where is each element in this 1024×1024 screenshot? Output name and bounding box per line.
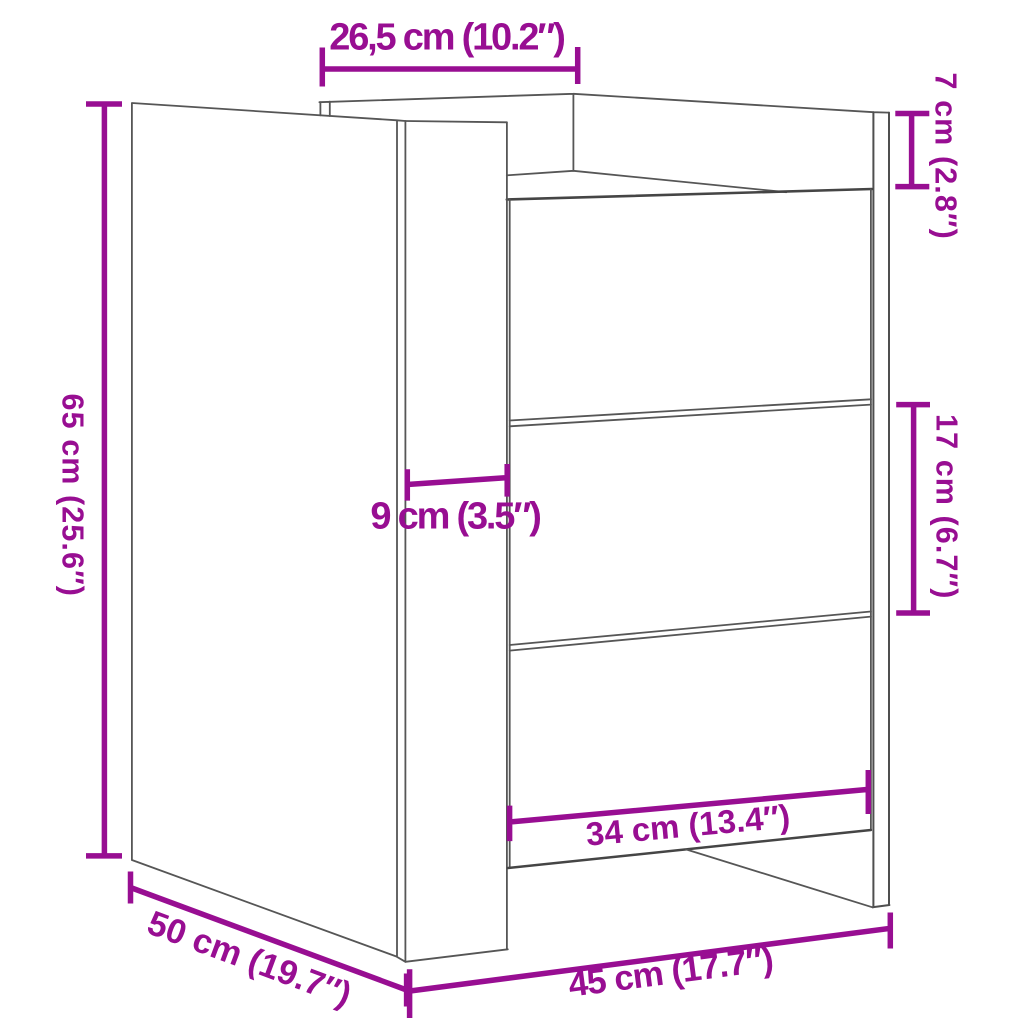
svg-text:7 cm (2.8″): 7 cm (2.8″) [929,73,963,240]
svg-text:17 cm (6.7″): 17 cm (6.7″) [930,414,964,599]
svg-text:9 cm (3.5″): 9 cm (3.5″) [370,496,540,538]
svg-text:26,5 cm (10.2″): 26,5 cm (10.2″) [329,17,564,59]
svg-text:65 cm (25.6″): 65 cm (25.6″) [56,394,90,598]
